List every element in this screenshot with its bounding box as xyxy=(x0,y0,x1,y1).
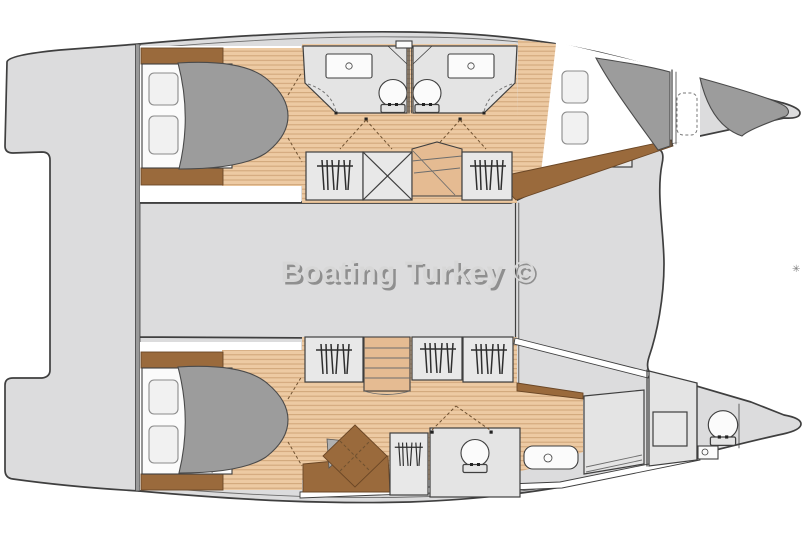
pillow xyxy=(149,426,178,463)
toilet xyxy=(413,80,441,113)
toilet xyxy=(379,80,407,113)
stern-deck-platform xyxy=(5,44,139,491)
deck-hatch xyxy=(396,41,412,48)
vanity-sink xyxy=(524,446,578,469)
sink-counter xyxy=(448,54,494,78)
port-hull-interior xyxy=(140,40,789,203)
pillow xyxy=(562,71,588,103)
sink-counter xyxy=(326,54,372,78)
headboard-trim-top xyxy=(141,352,223,368)
watermark-text: Boating Turkey © xyxy=(281,256,536,289)
door-hinge-post xyxy=(431,431,434,434)
wardrobe xyxy=(306,152,363,200)
pillow xyxy=(149,116,178,154)
wardrobe xyxy=(462,152,512,200)
floor-plan-drawing: Boating Turkey © Boating Turkey © ✳ xyxy=(0,0,810,540)
pillow xyxy=(149,380,178,414)
door-hinge-post xyxy=(335,112,338,115)
wardrobe xyxy=(412,337,462,380)
storage-hatch xyxy=(653,412,687,446)
corner-artifact-mark: ✳ xyxy=(792,264,800,275)
starboard-hull-interior xyxy=(140,337,739,498)
wardrobe xyxy=(305,337,363,382)
wardrobe xyxy=(463,337,513,382)
catamaran-floor-plan-page: Boating Turkey © Boating Turkey © ✳ xyxy=(0,0,810,540)
watermark: Boating Turkey © Boating Turkey © xyxy=(281,256,538,292)
headboard-trim-bottom xyxy=(141,168,223,185)
door-hinge-post xyxy=(490,431,493,434)
toilet xyxy=(461,440,489,473)
toilet xyxy=(708,411,737,446)
aft-bulkhead-line xyxy=(136,44,141,491)
pillow xyxy=(562,112,588,144)
wardrobe xyxy=(390,433,428,495)
headboard-trim-top xyxy=(141,48,223,64)
headboard-trim-bottom xyxy=(141,474,223,490)
companionway-stairs xyxy=(364,337,410,391)
door-hinge-post xyxy=(483,112,486,115)
pillow xyxy=(149,73,178,105)
